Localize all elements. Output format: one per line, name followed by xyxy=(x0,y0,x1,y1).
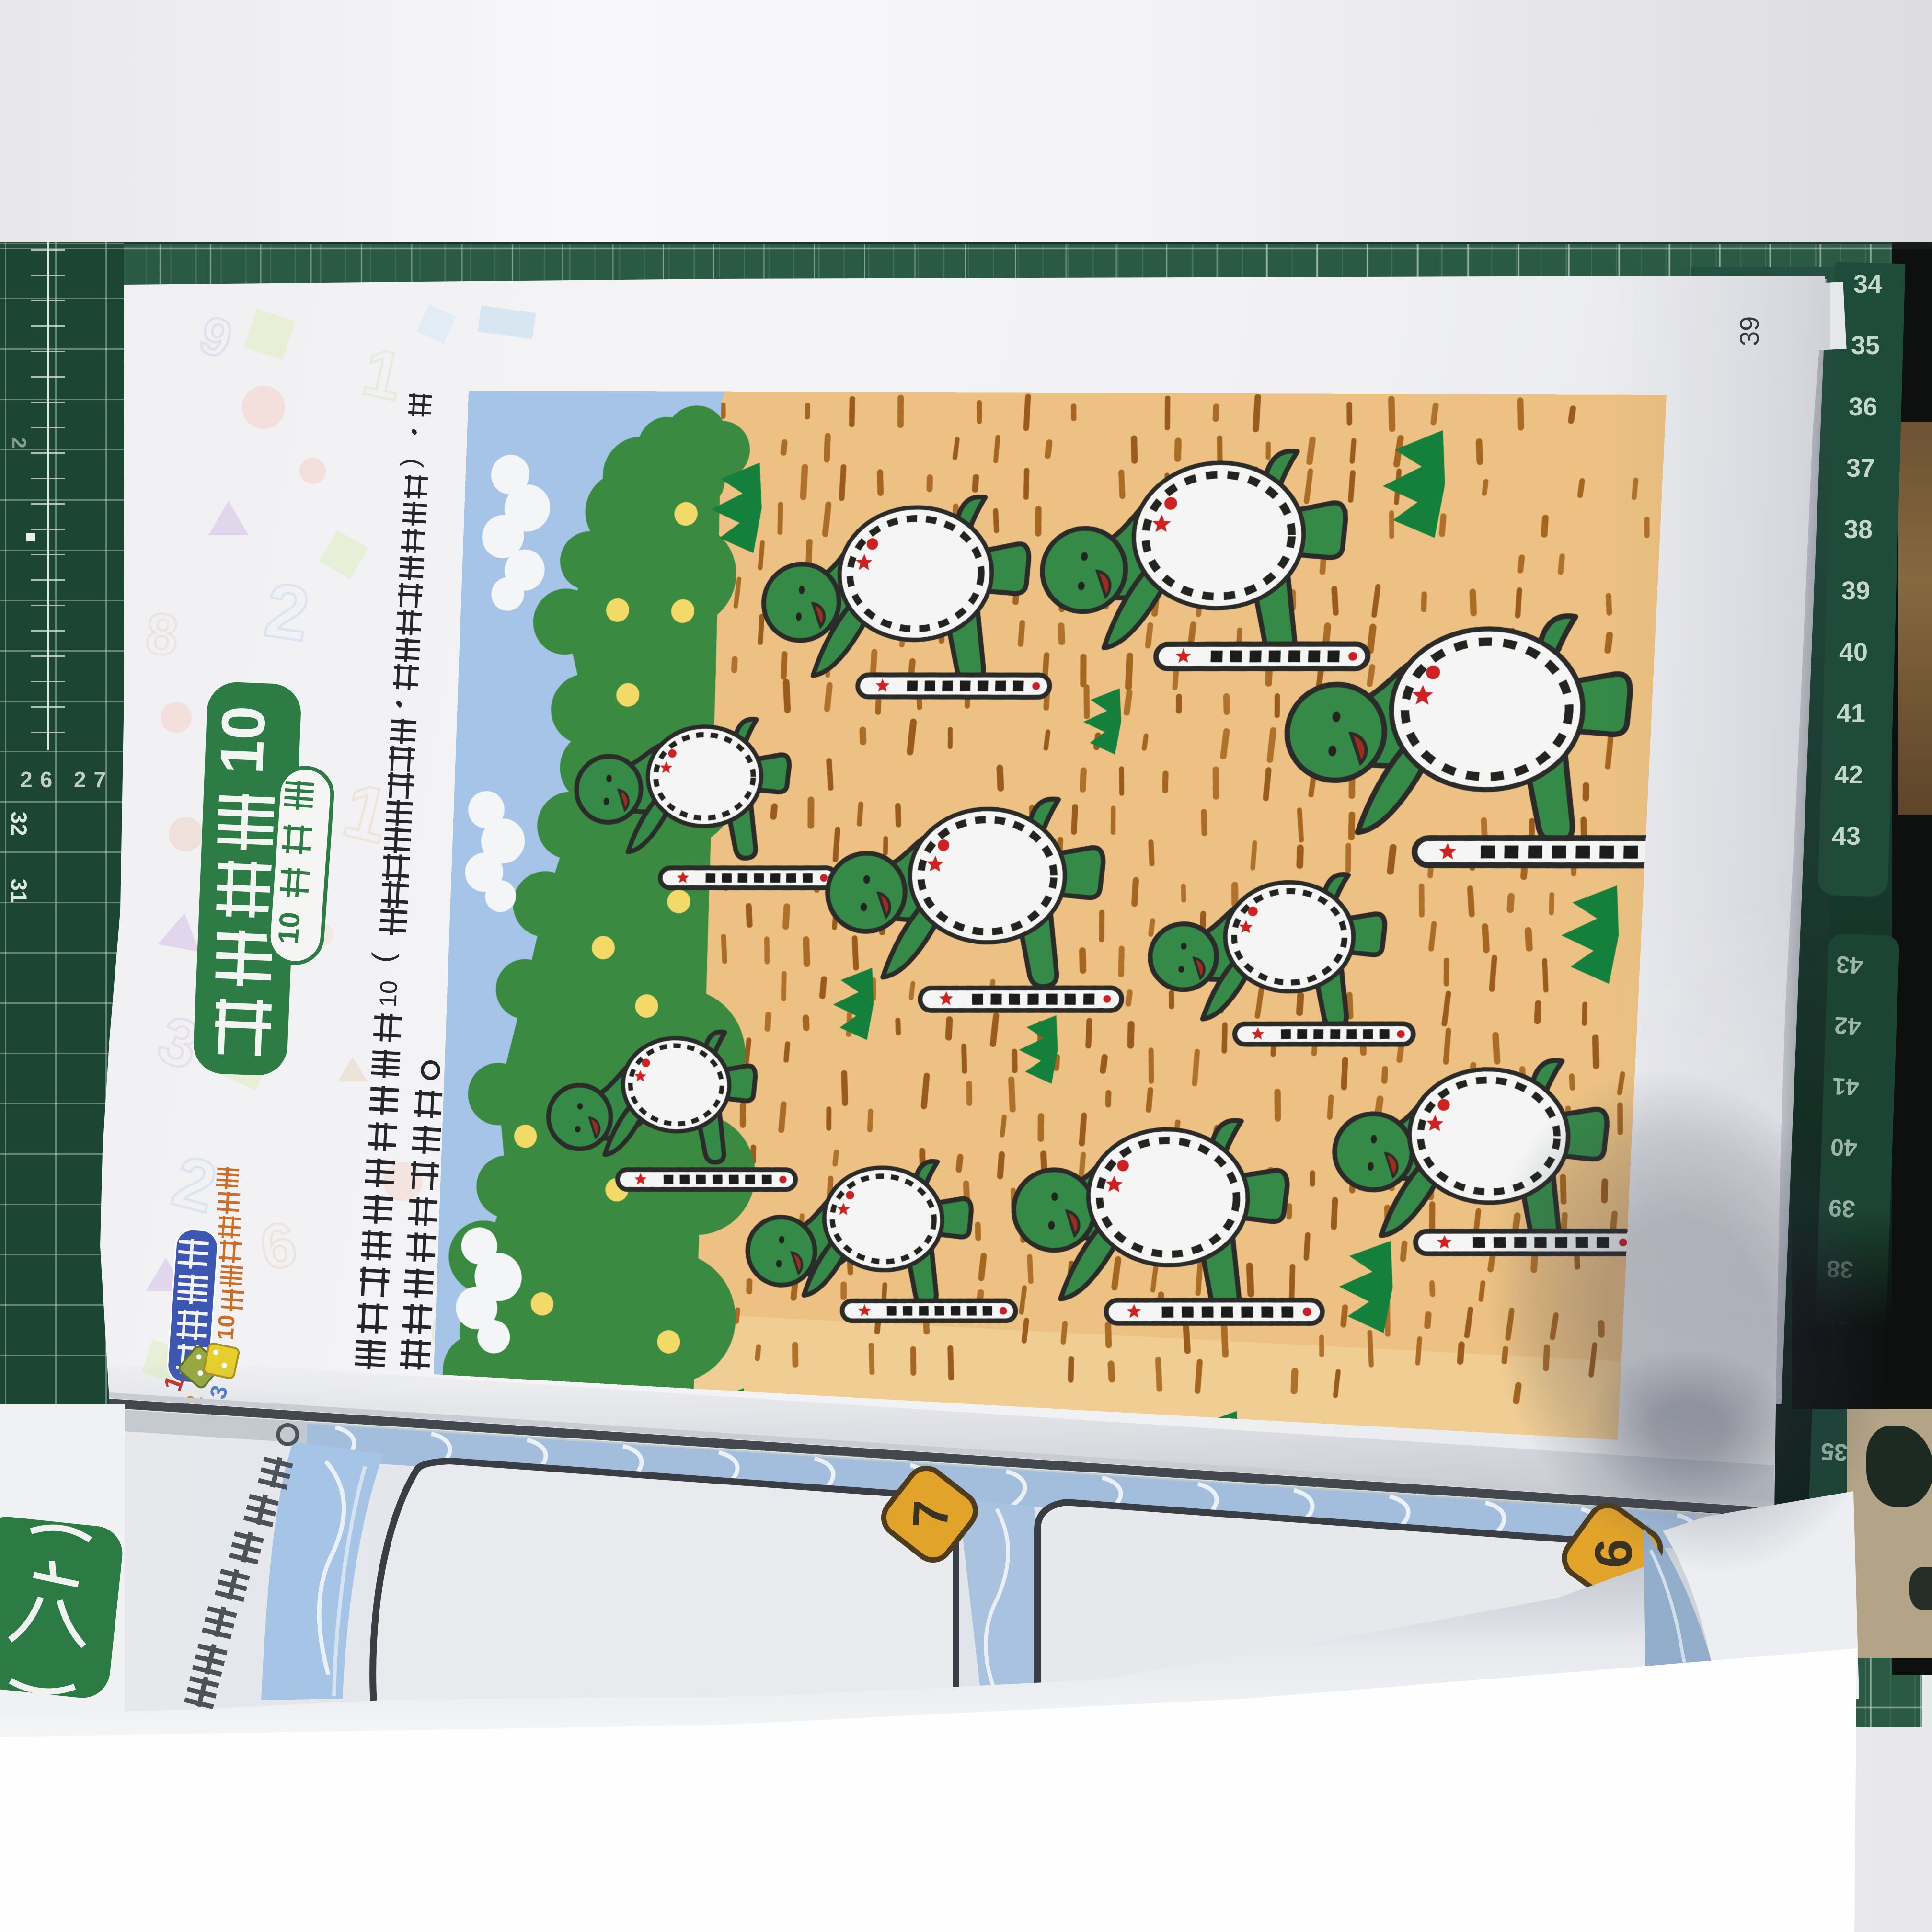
svg-text:7: 7 xyxy=(903,1499,960,1529)
